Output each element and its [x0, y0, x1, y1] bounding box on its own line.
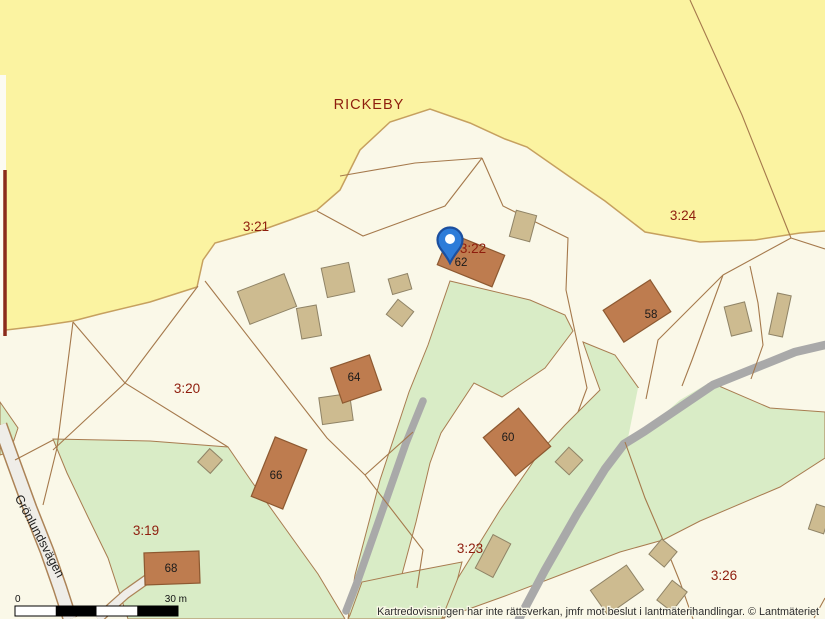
building-number-64: 64: [348, 372, 361, 384]
building-number-66: 66: [270, 470, 283, 482]
parcel-label-3-21: 3:21: [243, 219, 269, 234]
cadastral-map[interactable]: RICKEBY 3:21 3:24 3:22 3:20 3:19 3:23 3:…: [0, 0, 825, 619]
building-number-60: 60: [502, 432, 515, 444]
scale-start-label: 0: [15, 594, 21, 605]
outbuilding: [321, 262, 355, 297]
building-number-68: 68: [165, 563, 178, 575]
building-number-58: 58: [645, 309, 658, 321]
parcel-label-3-19: 3:19: [133, 523, 159, 538]
scale-end-label: 30 m: [165, 594, 187, 605]
parcel-label-3-26: 3:26: [711, 568, 737, 583]
area-label-rickeby: RICKEBY: [334, 97, 405, 113]
building-number-62: 62: [455, 257, 468, 269]
parcel-label-3-22: 3:22: [460, 241, 486, 256]
parcel-label-3-24: 3:24: [670, 208, 697, 223]
pin-hole-icon: [445, 234, 455, 244]
scale-bar-segment: [56, 606, 97, 616]
scale-bar-segment: [137, 606, 178, 616]
parcel-label-3-20: 3:20: [174, 381, 200, 396]
parcel-label-3-23: 3:23: [457, 541, 483, 556]
map-canvas[interactable]: RICKEBY 3:21 3:24 3:22 3:20 3:19 3:23 3:…: [0, 0, 825, 619]
copyright-disclaimer: Kartredovisningen har inte rättsverkan, …: [377, 606, 819, 618]
